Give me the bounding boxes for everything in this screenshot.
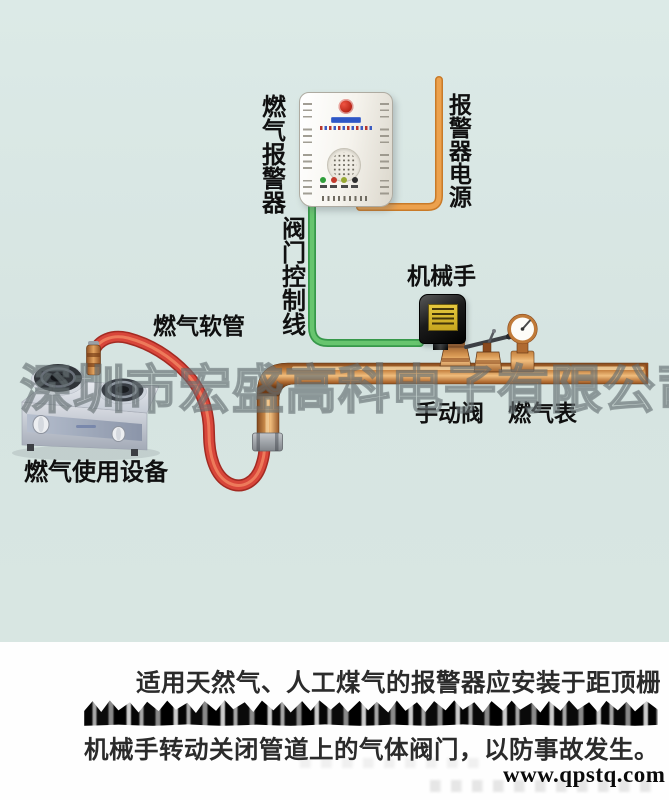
stove-knob-right-bar [116, 428, 121, 441]
label-valve-control-line: 阀门控制线 [278, 216, 303, 336]
faint-watermark-smudge [300, 758, 480, 768]
side-vents-icon [380, 103, 389, 197]
page: 燃气报警器 阀门控制线 报警器电源 机械手 燃气软管 手动阀 燃气表 燃气使用设… [0, 0, 669, 800]
pipe-coupling [253, 433, 283, 451]
indicator-leds [320, 177, 358, 183]
website-url: www.qpstq.com [503, 762, 665, 788]
installation-diagram: 燃气报警器 阀门控制线 报警器电源 机械手 燃气软管 手动阀 燃气表 燃气使用设… [0, 0, 669, 642]
brand-name-mark [331, 117, 361, 123]
bottom-vents-icon [322, 196, 370, 201]
stove-brand-mark [76, 425, 96, 428]
model-text-mark [320, 126, 372, 130]
company-watermark: 深圳市宏盛高科电子有限公司 [20, 348, 669, 423]
manipulator-label-panel [428, 304, 458, 331]
label-manipulator: 机械手 [407, 264, 476, 288]
manipulator-device [419, 294, 466, 344]
caption-area: 适用天然气、人工煤气的报警器应安装于距顶栅 机械手转动关闭管道上的气体阀门，以防… [0, 642, 669, 800]
led-green-icon [320, 177, 326, 183]
gas-alarm-device [299, 92, 393, 207]
caption-line-1: 适用天然气、人工煤气的报警器应安装于距顶栅 [136, 664, 661, 699]
stove-foot-left [27, 444, 34, 451]
stove-foot-right [131, 449, 138, 456]
side-vents-icon [303, 103, 312, 197]
led-yellow-icon [341, 177, 347, 183]
led-red-icon [331, 177, 337, 183]
label-alarm-power: 报警器电源 [446, 93, 470, 208]
redacted-line [84, 699, 658, 726]
label-gas-alarm: 燃气报警器 [258, 94, 283, 214]
valve-control-wire [312, 205, 420, 343]
led-dark-icon [352, 177, 358, 183]
brand-logo-icon [339, 99, 354, 114]
label-gas-hose: 燃气软管 [153, 314, 245, 338]
label-gas-appliance: 燃气使用设备 [24, 460, 168, 485]
